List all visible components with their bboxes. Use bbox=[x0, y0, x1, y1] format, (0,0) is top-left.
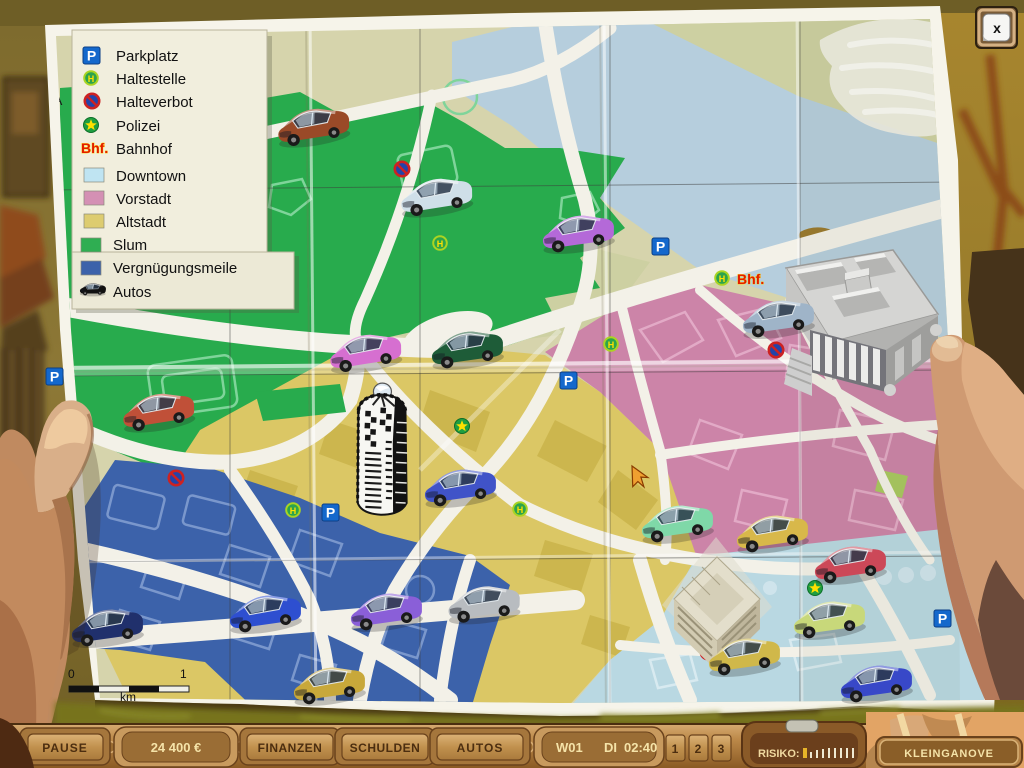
svg-text:02:40: 02:40 bbox=[624, 740, 657, 755]
svg-text:Vergnügungsmeile: Vergnügungsmeile bbox=[113, 260, 237, 277]
svg-text:PAUSE: PAUSE bbox=[42, 741, 87, 755]
svg-text:Altstadt: Altstadt bbox=[116, 214, 167, 231]
svg-text:Downtown: Downtown bbox=[116, 168, 186, 185]
svg-text:0: 0 bbox=[68, 667, 75, 681]
svg-text:DI: DI bbox=[604, 740, 617, 755]
svg-text:RISIKO:: RISIKO: bbox=[758, 748, 800, 760]
svg-text:AUTOS: AUTOS bbox=[457, 741, 504, 755]
svg-text:Vorstadt: Vorstadt bbox=[116, 191, 172, 208]
svg-text:Halteverbot: Halteverbot bbox=[116, 94, 194, 111]
svg-text:W01: W01 bbox=[556, 740, 583, 755]
svg-text:3: 3 bbox=[718, 742, 725, 756]
svg-text:2: 2 bbox=[695, 742, 702, 756]
svg-text:1: 1 bbox=[180, 667, 187, 681]
svg-text:Bahnhof: Bahnhof bbox=[116, 141, 173, 158]
svg-text:Slum: Slum bbox=[113, 237, 147, 254]
svg-text:Bhf.: Bhf. bbox=[81, 140, 108, 156]
svg-text:Autos: Autos bbox=[113, 284, 151, 301]
svg-text:FINANZEN: FINANZEN bbox=[258, 741, 323, 755]
svg-text:km: km bbox=[120, 690, 136, 704]
svg-text:SCHULDEN: SCHULDEN bbox=[350, 741, 421, 755]
svg-text:Haltestelle: Haltestelle bbox=[116, 71, 186, 88]
svg-text:KLEINGANOVE: KLEINGANOVE bbox=[904, 748, 993, 760]
svg-text:Polizei: Polizei bbox=[116, 118, 160, 135]
svg-text:Bhf.: Bhf. bbox=[737, 271, 764, 287]
svg-text:x: x bbox=[993, 20, 1001, 36]
svg-text:1: 1 bbox=[672, 742, 679, 756]
svg-text:24 400 €: 24 400 € bbox=[151, 740, 202, 755]
svg-text:Parkplatz: Parkplatz bbox=[116, 48, 179, 65]
